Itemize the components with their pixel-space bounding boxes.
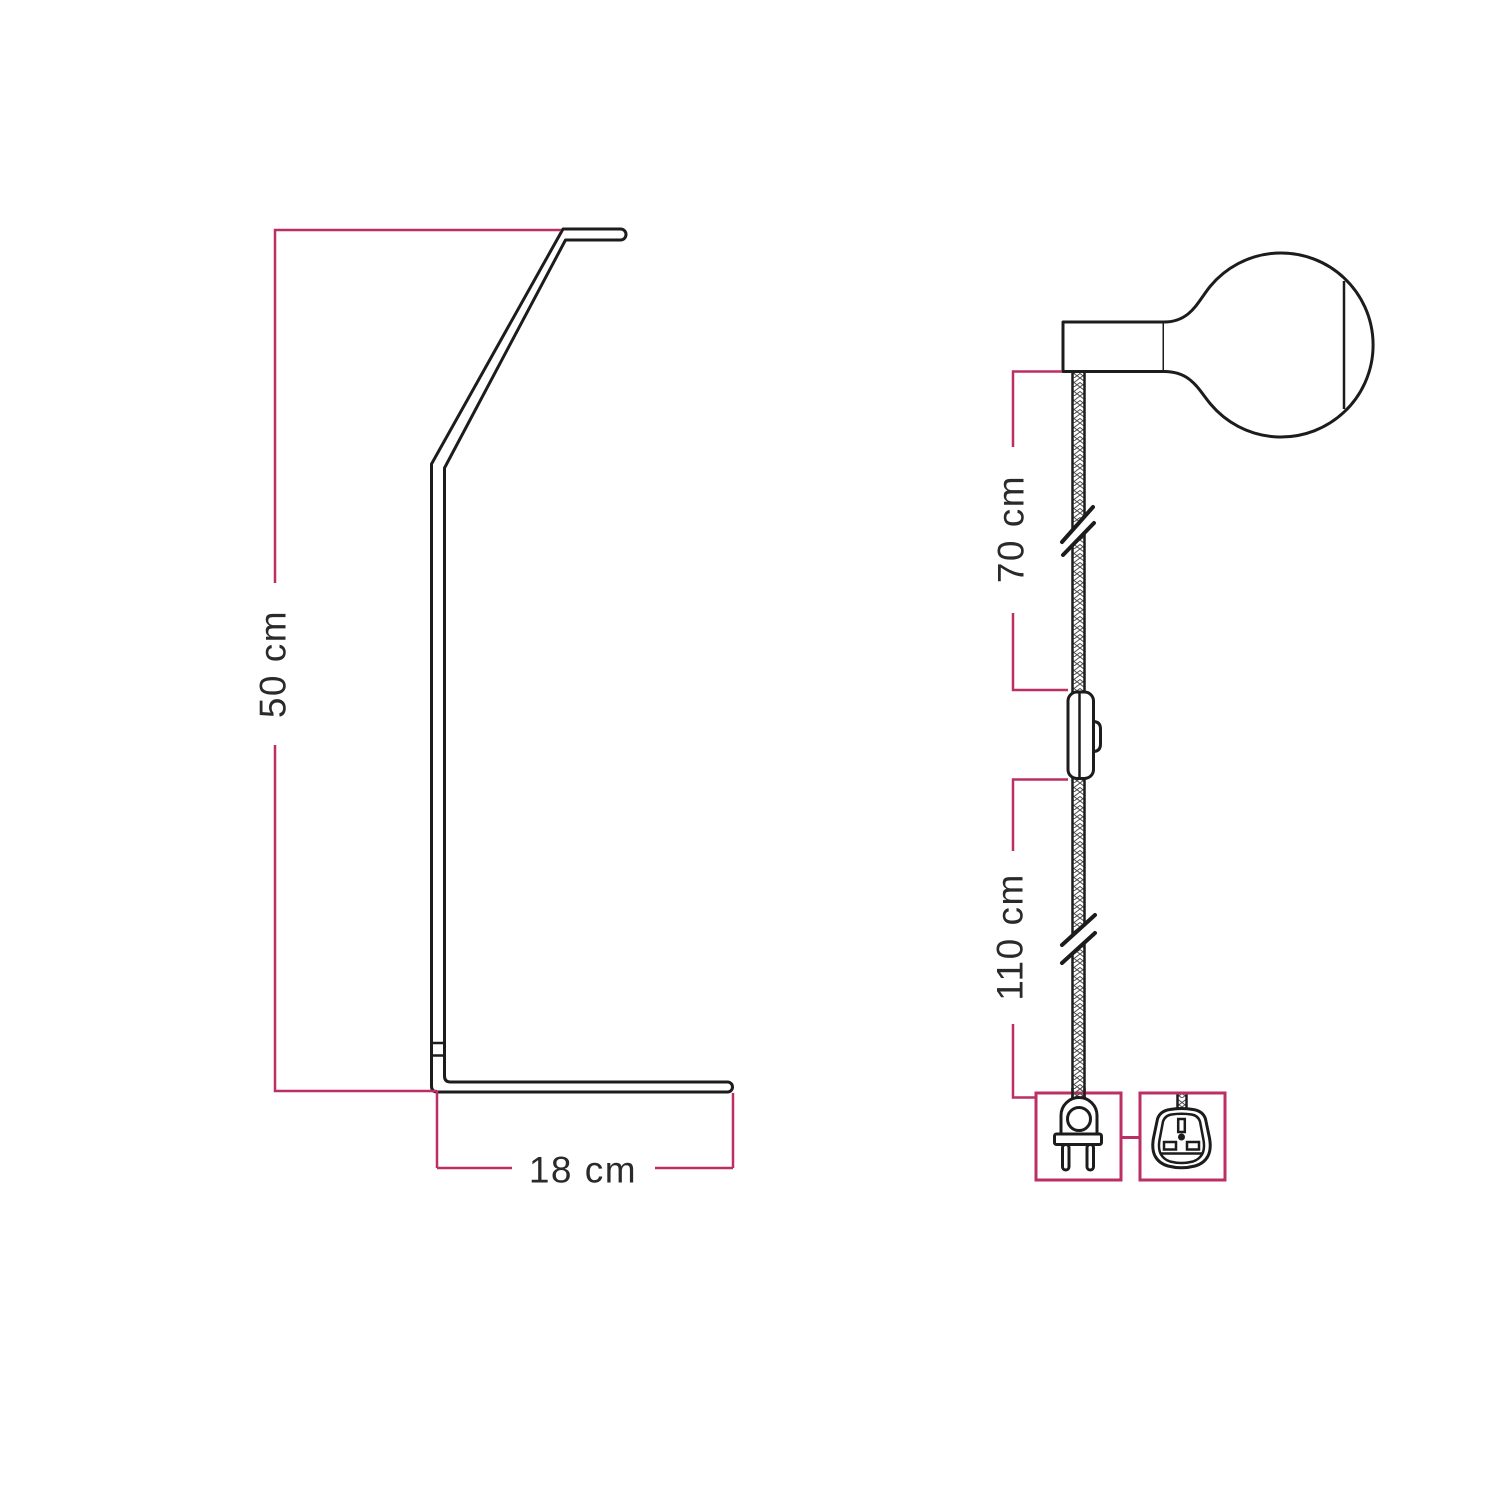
lamp-holder-icon — [1063, 322, 1164, 372]
lamp-holder-body — [1063, 322, 1164, 372]
lower-dimension-line-bottom — [1013, 1024, 1036, 1098]
lower-cable-dimension-label: 110 cm — [990, 873, 1031, 1001]
stand-height-dimension: 50 cm — [253, 230, 562, 1091]
upper-dimension-line-bottom — [1013, 613, 1068, 690]
stand-base-dimension: 18 cm — [437, 1091, 733, 1191]
upper-dimension-line-top — [1013, 372, 1062, 448]
upper-cable-dimension-label: 70 cm — [991, 475, 1032, 583]
lower-cable-dimension: 110 cm — [990, 780, 1069, 1098]
uk-plug-adapter-icon — [1153, 1095, 1210, 1168]
base-dimension-label: 18 cm — [529, 1150, 637, 1191]
stand-side-view — [432, 229, 733, 1092]
upper-cable-dimension: 70 cm — [991, 372, 1069, 691]
plug-base-plate — [1055, 1134, 1102, 1145]
stand-outline — [432, 229, 733, 1092]
diagram-canvas: 50 cm 18 cm — [0, 0, 1500, 1500]
height-dimension-label: 50 cm — [253, 610, 294, 718]
lamp-dimensions-drawing: 50 cm 18 cm — [0, 0, 1500, 1500]
bulb-icon — [1164, 253, 1373, 437]
plug-pin-right — [1087, 1145, 1094, 1171]
height-dimension-line-top — [275, 230, 561, 583]
plug-pin-left — [1063, 1145, 1070, 1171]
euro-two-pin-plug-icon — [1055, 1098, 1102, 1171]
adapter-screw-dot — [1178, 1134, 1185, 1141]
inline-switch-icon — [1068, 692, 1101, 779]
lower-dimension-line-top — [1013, 780, 1068, 852]
bulb-globe-outline — [1164, 253, 1373, 437]
pendant-view: 70 cm 110 cm — [990, 253, 1374, 1180]
height-dimension-line-bottom — [275, 745, 437, 1091]
plug-thumb-hole — [1068, 1108, 1091, 1131]
